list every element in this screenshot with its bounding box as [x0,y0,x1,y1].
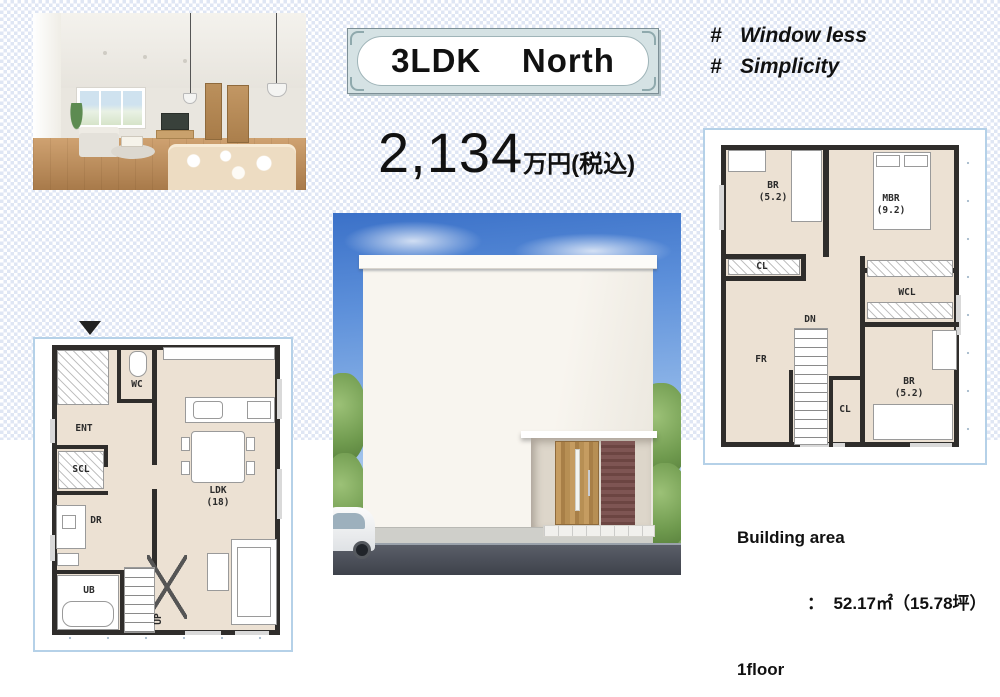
kitchen-sink [193,401,223,419]
chair [181,437,190,451]
room-label: BR(5.2) [759,180,788,204]
sofa-seat [237,547,271,617]
wall-segment [117,399,157,403]
ceiling-light [183,59,187,63]
wall-segment [860,256,865,447]
toilet [129,351,147,377]
area-label: 1floor [737,659,987,681]
pendant-light [267,83,287,97]
frame-ornament [350,77,364,91]
stove [247,401,271,419]
single-bed [791,150,822,222]
room-label: CL [839,404,850,416]
wall-segment [789,370,793,447]
room-label: SCL [72,464,89,476]
exterior-photo [333,213,681,575]
bathtub [62,601,114,627]
frame-ornament [642,77,656,91]
desk [932,330,957,370]
window-symbol [277,379,282,419]
roof-parapet [359,255,657,269]
closet-rod [867,302,953,319]
hash-symbol: # [710,55,740,79]
interior-door [205,83,222,140]
entrance-canopy [521,431,657,438]
window-symbol [719,185,724,230]
dining-table [168,144,296,190]
wall-segment [52,570,124,574]
ceiling [33,13,306,88]
road [333,543,681,575]
coffee-table [121,136,143,147]
room-label: UB [83,585,94,597]
car-wheel [353,541,371,559]
hashtag-label: Simplicity [740,55,839,78]
area-label: Building area [737,527,987,549]
hashtag: #Window less [710,24,867,48]
tree [333,373,367,463]
wall-segment [52,491,108,495]
stairs-up-label: UP [153,613,165,624]
wall-segment [721,276,806,281]
window-symbol [235,631,269,635]
wall-segment [52,445,108,449]
price-value: 2,134 [378,121,523,184]
window-symbol [277,469,282,519]
room-label: DR [90,515,101,527]
room-label: WCL [898,287,915,299]
pendant-cord [276,13,277,84]
room-label: LDK(18) [207,485,230,509]
house [363,255,653,545]
room-label: BR(5.2) [895,376,924,400]
tv-stand [156,130,194,139]
frame-ornament [350,31,364,45]
car-window [333,513,365,529]
entrance-direction-marker [79,321,101,335]
window-symbol [185,631,221,635]
wall-segment [823,145,829,257]
staircase [124,567,155,633]
desk [728,150,766,172]
room-label: MBR(9.2) [877,193,906,217]
wall-segment [117,345,121,403]
stairs-down-label: DN [804,314,815,326]
pillow [876,155,900,167]
entrance-porch [57,350,109,405]
entrance-step [543,525,655,537]
building-area-info: Building area ： 52.17㎡（15.78坪） 1floor ： … [737,483,987,697]
pendant-cord [190,13,191,94]
front-door [555,441,599,525]
hashtag-list: #Window less #Simplicity [710,24,867,86]
living-window [77,88,145,128]
single-bed [873,404,953,440]
door-glass-slit [575,449,580,511]
hashtag-label: Window less [740,24,867,47]
entrance-side-panel [601,441,635,525]
chair [181,461,190,475]
pendant-light [183,93,197,104]
chair [246,437,255,451]
room-label: ENT [75,423,92,435]
room-label: FR [755,354,766,366]
room-label: WC [131,379,142,391]
title-pill: 3LDK North [357,36,649,86]
tv [161,113,189,130]
ceiling-light [143,55,147,59]
interior-door [227,85,249,143]
sink-bowl [62,515,76,529]
staircase [794,328,828,445]
price-unit: 万円(税込) [523,151,635,178]
dining-table [191,431,245,483]
wall-segment [829,376,864,380]
wall-segment [829,376,833,447]
wall-segment [801,254,806,281]
window-symbol [50,419,55,443]
wall-segment [865,322,959,327]
price: 2,134万円(税込) [378,120,635,185]
title-box: 3LDK North [347,28,659,94]
room-label: CL [756,261,767,273]
floor-plan-1f: WC ENT SCL DR UB LDK(18) UP [33,337,293,652]
window-symbol [50,535,55,561]
car [333,501,379,559]
flyer-page: 3LDK North 2,134万円(税込) #Window less #Sim… [0,0,1000,697]
pillow [904,155,928,167]
hash-symbol: # [710,24,740,48]
wall-segment [152,345,157,465]
window-symbol [956,295,961,335]
area-value: ： 52.17㎡（15.78坪） [737,593,987,615]
ceiling-light [103,51,107,55]
interior-photo [33,13,306,190]
door-handle [588,470,590,496]
kitchen-cabinet [163,347,275,360]
hashtag: #Simplicity [710,55,867,79]
window-symbol [910,443,952,447]
wall-segment [104,445,108,467]
washer [57,553,79,566]
frame-ornament [642,31,656,45]
coffee-table [207,553,229,591]
floor-plan-2f: BR(5.2) MBR(9.2) CL WCL DN FR CL BR(5.2) [703,128,987,465]
plan-title: 3LDK North [391,42,615,80]
closet-rod [867,260,953,277]
chair [246,461,255,475]
